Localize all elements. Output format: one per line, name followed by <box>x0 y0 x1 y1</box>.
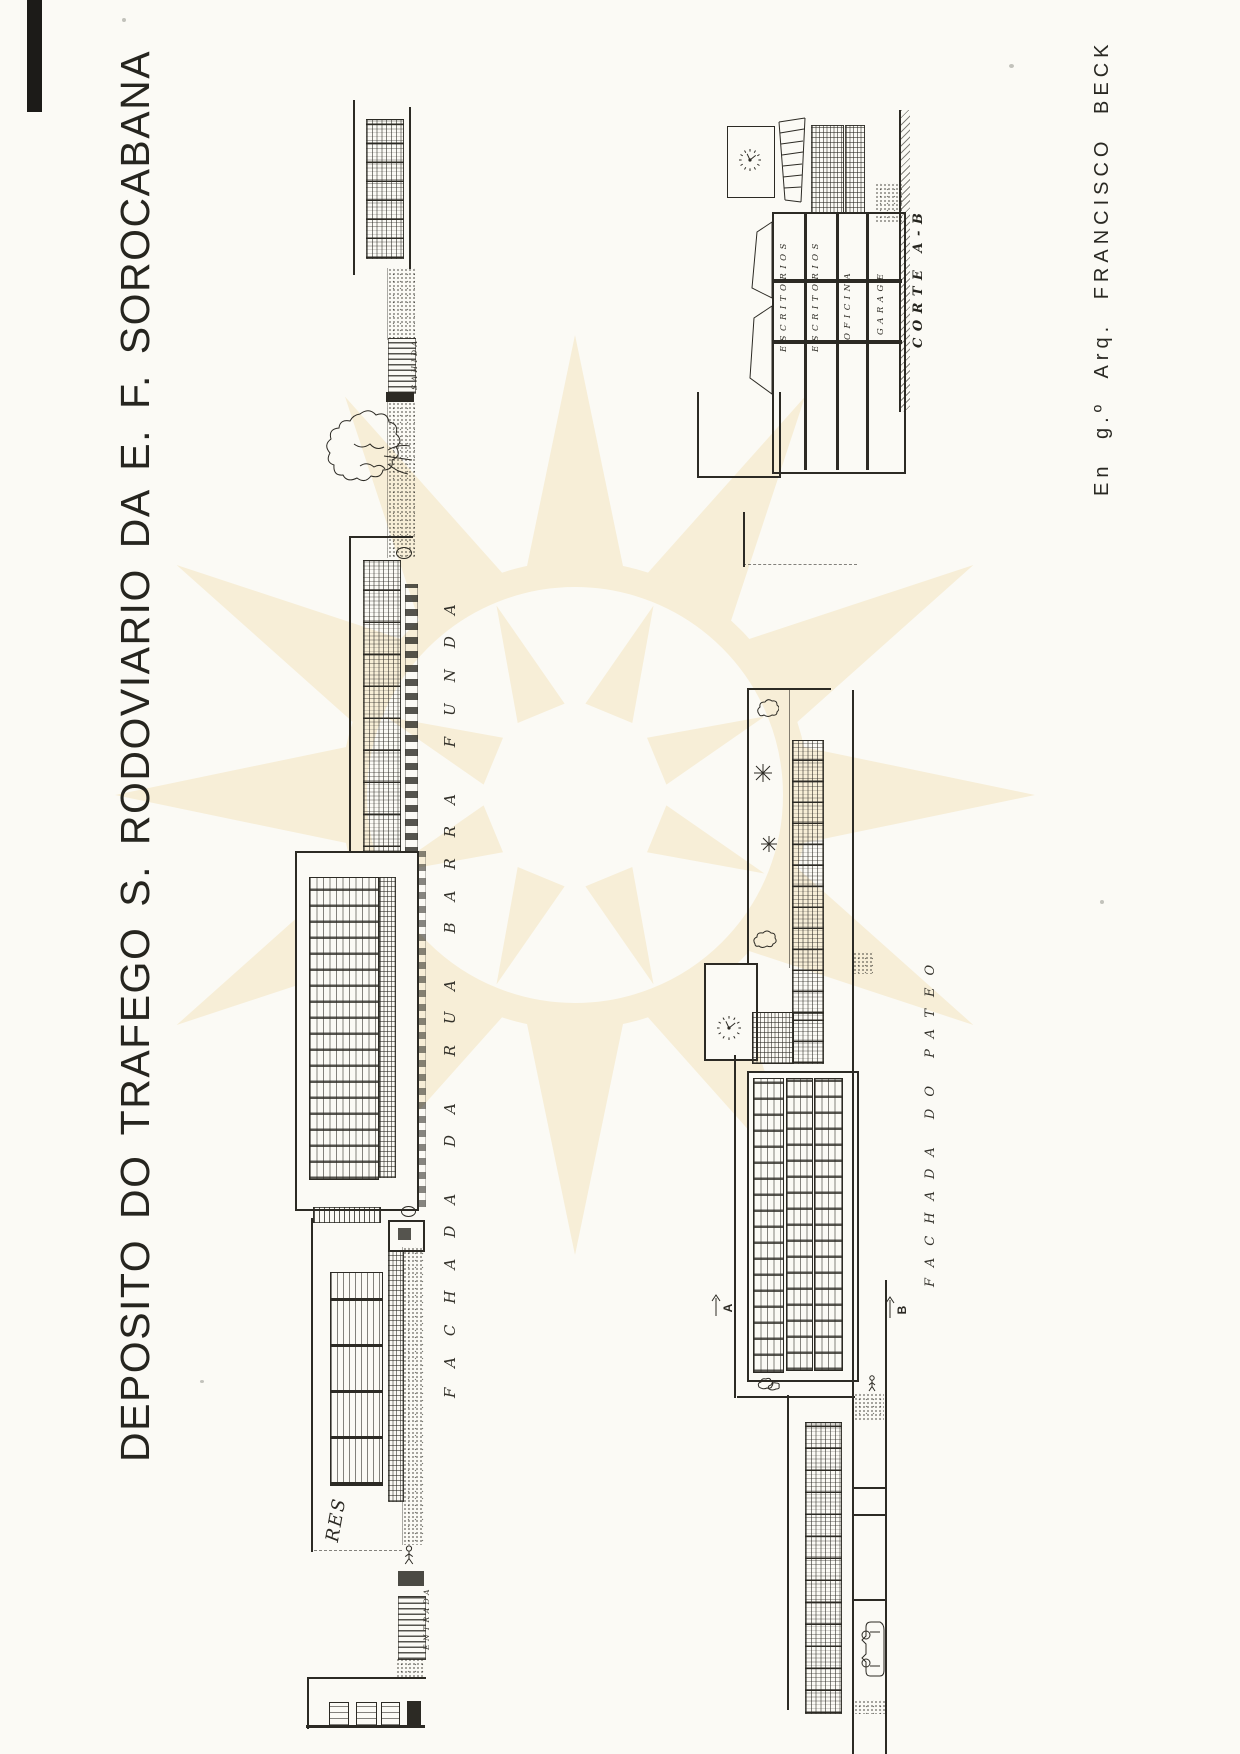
label-corte-ab: CORTE A-B <box>911 207 926 348</box>
elev1-end-window <box>381 1702 400 1726</box>
elev2-yard-wall <box>852 690 854 1754</box>
elev1-end-window <box>356 1702 377 1726</box>
elev1-wall-line <box>353 100 355 275</box>
corte-roof-truss <box>773 116 811 204</box>
elev2-hall-base <box>737 1396 855 1398</box>
elev1-ground-dash <box>314 1550 402 1551</box>
label-fachada-rua-barra-funda: FACHADA DA RUA BARRA FUNDA <box>441 583 459 1398</box>
room-label-garage: GARAGE <box>876 270 886 335</box>
elev1-base-line <box>306 1725 425 1728</box>
elev1-end-window <box>329 1702 349 1726</box>
elev1-lower-window-band <box>330 1272 383 1486</box>
car-sketch <box>858 1618 888 1680</box>
elev1-ledge-line <box>349 536 413 538</box>
elev1-lower-wall-line <box>311 1218 313 1552</box>
elev1-vent-strip <box>313 1207 381 1223</box>
scan-speck <box>1009 64 1014 68</box>
star-plant-sketch <box>760 835 778 853</box>
room-label-oficina: OFICINA <box>843 269 853 340</box>
clock-tower <box>704 963 758 1061</box>
room-label-escritorios-1: ESCRITORIOS <box>779 239 789 352</box>
elev2-walkway-line <box>885 1280 887 1754</box>
scan-speck <box>200 1380 204 1383</box>
lamp-ornament <box>396 547 412 559</box>
elev1-dark-opening-glass <box>398 1228 411 1240</box>
elev2-wall-stipple <box>853 952 873 974</box>
corte-roof-pitch <box>748 218 774 400</box>
section-marker-a-label: A <box>721 1303 735 1312</box>
scan-speck <box>122 18 126 22</box>
elev1-end-door <box>407 1701 421 1725</box>
architect-credit: En g.º Arq. FRANCISCO BECK <box>1091 40 1114 497</box>
sunburst-watermark <box>0 0 1240 1754</box>
label-entrada: ENTRADA <box>422 1586 431 1650</box>
drawing-sheet: DEPOSITO DO TRAFEGO S. RODOVIARIO DA E. … <box>0 0 1240 1754</box>
tower-clock-face <box>714 1013 744 1043</box>
elev1-street-line <box>409 107 411 269</box>
lamp-ornament <box>401 1206 416 1217</box>
label-sahida: SAHIDA <box>410 338 419 391</box>
elev1-parapet-line <box>349 538 351 860</box>
elev1-stair-glazing <box>379 877 396 1178</box>
scan-speck <box>1100 900 1104 904</box>
elev2-left-edge <box>747 690 749 965</box>
elev2-upper-window-band <box>792 1012 824 1064</box>
elev1-wall-stipple <box>387 268 415 340</box>
elev2-low-guide-line <box>787 1395 789 1710</box>
elev2-upper-window-band <box>792 740 824 1014</box>
corte-clock-face <box>736 146 764 174</box>
room-label-escritorios-2: ESCRITORIOS <box>811 239 821 352</box>
elev1-gate-header <box>398 1571 424 1586</box>
elev1-workshop-glazing <box>309 877 379 1180</box>
corte-pit-wall <box>697 392 699 478</box>
elev2-paving-joint <box>853 1599 886 1601</box>
elev2-paving-joint <box>853 1514 886 1516</box>
bush-sketch <box>755 698 779 718</box>
elev1-top-window-band <box>366 119 404 259</box>
elev2-paving-joint <box>853 1487 886 1489</box>
label-fachada-do-pateo: FACHADA DO PATEO <box>923 953 938 1287</box>
section-marker-b: B <box>884 1294 910 1328</box>
tower-window <box>752 1012 794 1064</box>
elev2-hall-glazing <box>753 1078 784 1373</box>
elev2-wall-stipple <box>854 1700 886 1714</box>
elev1-lower-wall-stipple <box>402 1247 424 1545</box>
sheet-title: DEPOSITO DO TRAFEGO S. RODOVIARIO DA E. … <box>112 50 159 1462</box>
elev1-boundary-wall <box>417 851 426 1207</box>
bush-sketch <box>751 928 777 948</box>
elev2-neighbor-wall-dash <box>743 564 857 565</box>
elev2-neighbor-wall <box>743 512 745 567</box>
elev2-hall-glazing <box>786 1078 813 1371</box>
star-plant-sketch <box>752 762 774 784</box>
elev2-hall-glazing <box>814 1078 843 1371</box>
elev2-garden-line <box>789 690 790 968</box>
corte-glazing-panel <box>845 125 865 214</box>
corte-pit-wall <box>779 392 781 478</box>
elev2-wall-stipple <box>854 1393 884 1420</box>
elev2-lower-window-band <box>805 1422 842 1714</box>
elev1-gate-stipple <box>396 1658 424 1678</box>
person-figure <box>402 1545 416 1565</box>
corte-floor-slab <box>772 340 902 344</box>
section-marker-b-label: B <box>895 1305 909 1314</box>
section-marker-a: A <box>710 1292 736 1326</box>
bush-sketch <box>767 1381 780 1391</box>
scan-edge-mark <box>27 0 42 112</box>
corte-pit-base <box>697 476 781 478</box>
person-figure <box>866 1375 878 1392</box>
tree-sketch <box>326 400 414 512</box>
elev2-lower-left-edge <box>734 1055 736 1398</box>
corte-glazing-panel <box>811 125 844 214</box>
